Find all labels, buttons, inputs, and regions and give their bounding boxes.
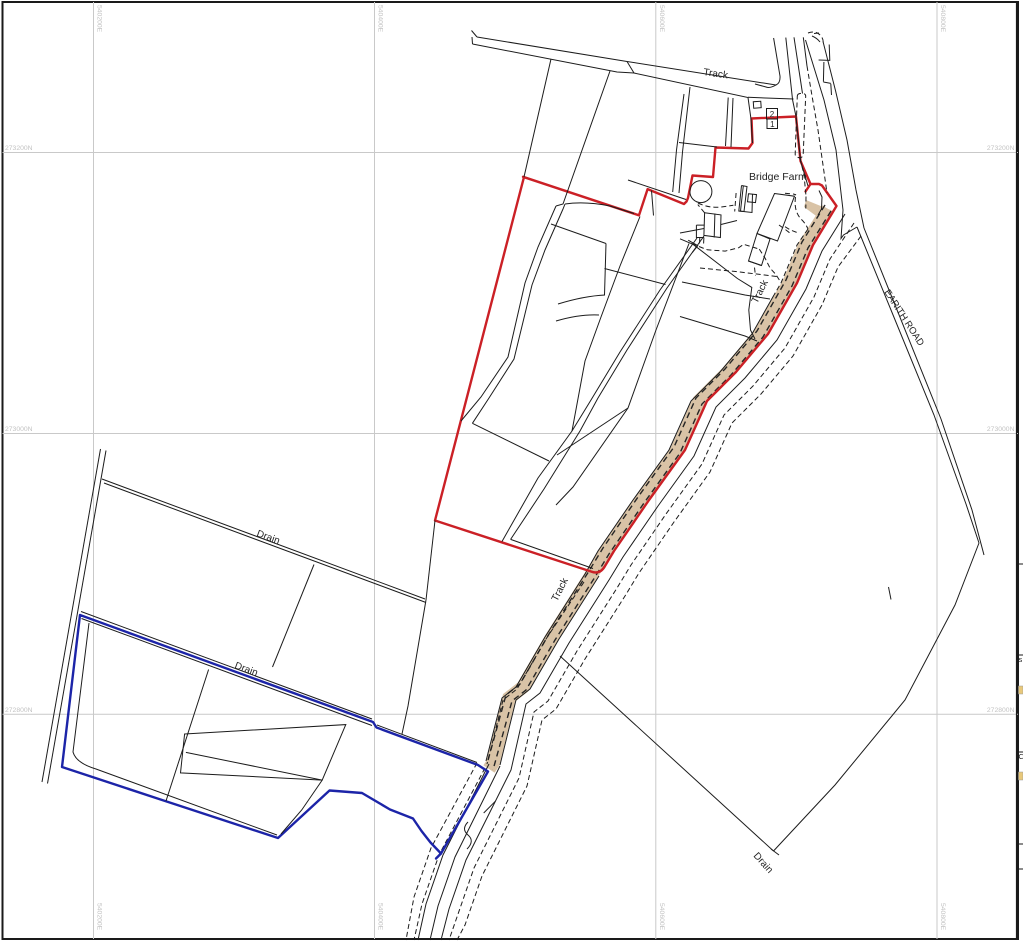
svg-text:540600E: 540600E: [658, 5, 665, 33]
svg-text:272800N: 272800N: [5, 707, 33, 714]
svg-text:273000N: 273000N: [987, 426, 1015, 433]
svg-text:540200E: 540200E: [96, 903, 103, 931]
svg-text:273200N: 273200N: [5, 145, 33, 152]
svg-text:273200N: 273200N: [987, 145, 1015, 152]
svg-text:273000N: 273000N: [5, 426, 33, 433]
svg-text:540800E: 540800E: [939, 5, 946, 33]
svg-text:540400E: 540400E: [377, 5, 384, 33]
svg-text:Bridge Farm: Bridge Farm: [749, 171, 807, 183]
svg-text:2: 2: [770, 110, 775, 119]
svg-text:1: 1: [770, 120, 775, 129]
svg-text:s: s: [1019, 655, 1023, 664]
svg-text:540200E: 540200E: [96, 5, 103, 33]
svg-text:540800E: 540800E: [939, 903, 946, 931]
svg-text:C: C: [1019, 752, 1023, 761]
svg-text:272800N: 272800N: [987, 707, 1015, 714]
svg-text:540400E: 540400E: [377, 903, 384, 931]
svg-text:540600E: 540600E: [658, 903, 665, 931]
